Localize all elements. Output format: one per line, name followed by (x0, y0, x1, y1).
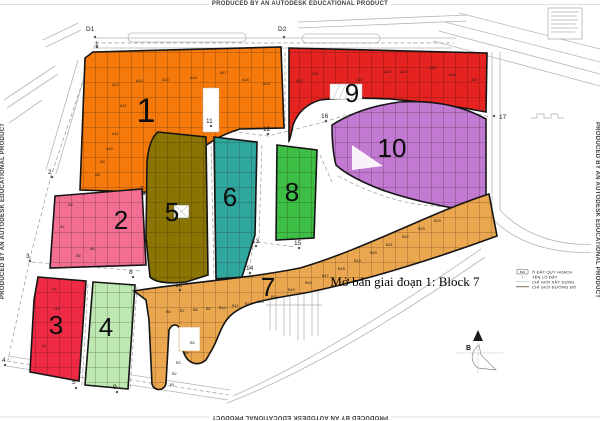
site-plan-map: A8 A9 A10 A11 A12 A13 A14 A15 A16 A17 A1… (0, 0, 600, 421)
node-label-3: 3 (26, 253, 30, 260)
lot-label: B1 (170, 383, 175, 387)
lot-label: A19 (263, 82, 270, 86)
lot-label: B22 (402, 235, 409, 239)
block-7-number: 7 (261, 272, 275, 302)
lot-label: A20 (296, 79, 303, 83)
lot-label: A6 (90, 247, 95, 251)
lot-label: A8 (95, 173, 100, 177)
node-label-16: 16 (321, 113, 329, 120)
node-label-2: 2 (48, 169, 52, 176)
node-label-12: 12 (263, 126, 271, 133)
lot-label: A8 (68, 203, 73, 207)
node-label-9: 9 (113, 384, 117, 391)
lot-label: A27 (471, 78, 478, 82)
legend-lot-name-symbol: 7 (522, 276, 524, 280)
north-arrow: B (456, 330, 503, 374)
lot-label: A16 (190, 76, 197, 80)
node-label-11: 11 (206, 118, 213, 125)
watermark-bottom: PRODUCED BY AN AUTODESK EDUCATIONAL PROD… (0, 414, 600, 420)
north-label: B (466, 345, 471, 352)
lot-label: B10 (219, 306, 226, 310)
legend-red-line-label: CHỈ GIỚI ĐƯỜNG ĐỎ (532, 285, 576, 290)
lot-label: B19 (354, 259, 361, 263)
lot-label: A11 (112, 132, 118, 136)
lot-label: B5 (190, 341, 195, 345)
block-2-number: 2 (114, 205, 128, 235)
lot-label: A14 (136, 79, 143, 83)
watermark-top: PRODUCED BY AN AUTODESK EDUCATIONAL PROD… (0, 1, 600, 7)
block-7-pocket (179, 327, 200, 351)
lot-label: A26 (449, 73, 456, 77)
lot-label: B8 (193, 308, 198, 312)
lot-label: A10 (106, 147, 113, 151)
block-8-number: 8 (285, 177, 299, 207)
lot-label: A21 (312, 72, 319, 76)
map-canvas: A8 A9 A10 A11 A12 A13 A14 A15 A16 A17 A1… (0, 0, 600, 421)
lot-label: B24 (434, 219, 441, 223)
block-5-number: 5 (165, 197, 179, 227)
block-4-number: 4 (99, 312, 113, 342)
lot-label: A13 (112, 83, 119, 87)
lot-label: A15 (162, 78, 169, 82)
legend-item-red-line: CHỈ GIỚI ĐƯỜNG ĐỎ (516, 285, 576, 290)
north-triangle-icon (473, 330, 483, 341)
zigzag-symbol (531, 114, 564, 118)
block-3-number: 3 (49, 310, 63, 340)
node-label-10: 10 (175, 282, 183, 289)
lot-label: A9 (100, 160, 105, 164)
lot-label: A7 (60, 225, 65, 229)
lot-label: B15 (288, 288, 295, 292)
block-1-number: 1 (137, 92, 156, 130)
lot-label: B3 (176, 361, 181, 365)
coordinate-table (548, 8, 582, 39)
block-10-number: 10 (378, 133, 407, 163)
block-9-number: 9 (345, 78, 359, 108)
lot-label: B4 (184, 351, 189, 355)
node-label-13: 13 (252, 238, 260, 245)
node-label-d1: D1 (86, 26, 95, 33)
node-label-15: 15 (294, 240, 302, 247)
lot-label: A23 (384, 70, 391, 74)
node-label-d2: D2 (278, 26, 287, 33)
lot-label: A4 (52, 287, 57, 291)
lot-label: A12 (120, 104, 127, 108)
lot-label: B11 (232, 304, 238, 308)
lot-label: B16 (305, 281, 312, 285)
compass-sail (472, 345, 496, 370)
node-label-5: 5 (72, 379, 76, 386)
legend-plot-symbol: B24 (520, 270, 526, 274)
legend: B24 Ô ĐẤT QUY HOẠCH 7 TÊN LÔ ĐẤT CHỈ GIỚ… (516, 270, 576, 290)
lot-label: A5 (76, 254, 81, 258)
node-label-17: 17 (499, 114, 507, 121)
block-6-number: 6 (223, 182, 237, 212)
node-label-7: 7 (140, 186, 144, 193)
node-label-14: 14 (246, 265, 254, 272)
lot-label: B6 (166, 310, 171, 314)
lot-label: B18 (338, 267, 345, 271)
phase-title: Mở bán giai đoạn 1: Block 7 (323, 274, 487, 290)
lot-label: A18 (242, 78, 249, 82)
lot-label: A24 (400, 70, 407, 74)
lot-label: A17 (220, 71, 227, 75)
block-10 (332, 102, 486, 213)
watermark-left: PRODUCED BY AN AUTODESK EDUCATIONAL PROD… (0, 0, 9, 421)
node-label-8: 8 (129, 269, 133, 276)
watermark-right: PRODUCED BY AN AUTODESK EDUCATIONAL PROD… (591, 0, 600, 421)
lot-label: A1 (42, 344, 47, 348)
lot-label: B23 (418, 227, 425, 231)
lot-label: B2 (172, 372, 177, 376)
lot-label: B21 (386, 243, 393, 247)
lot-label: B7 (180, 309, 185, 313)
lot-label: B9 (206, 307, 211, 311)
lot-label: B12 (245, 302, 252, 306)
lot-label: A25 (429, 66, 436, 70)
lot-label: B20 (370, 251, 377, 255)
